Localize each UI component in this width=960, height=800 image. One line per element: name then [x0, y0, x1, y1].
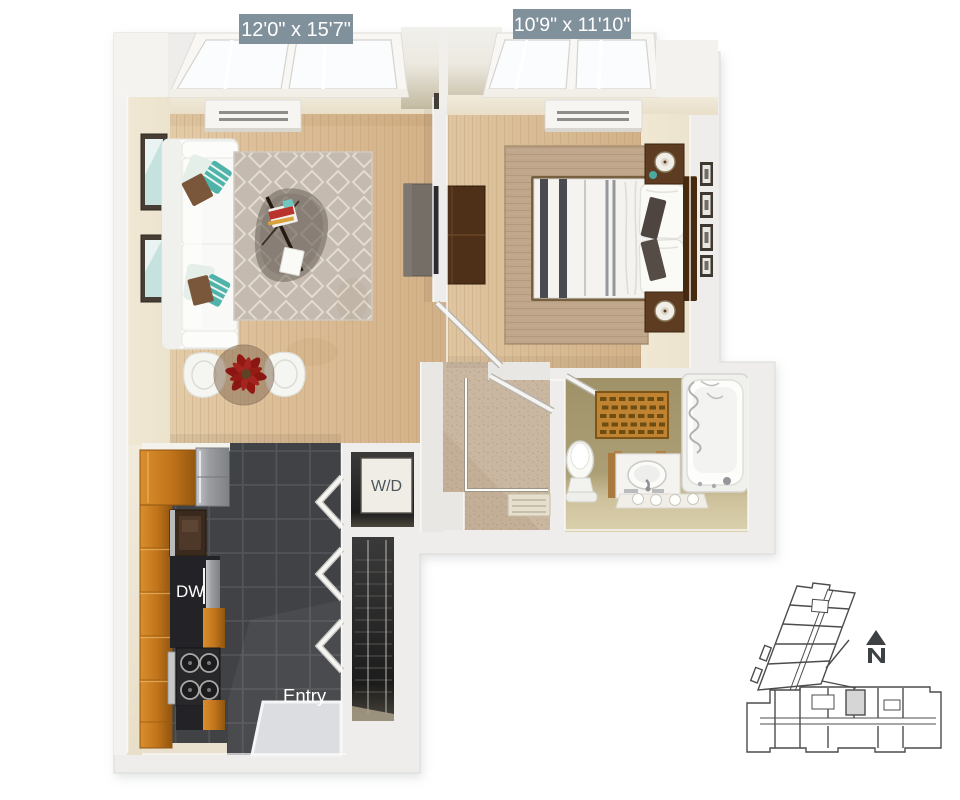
svg-text:W/D: W/D: [371, 478, 402, 495]
svg-text:DW: DW: [176, 582, 204, 601]
svg-text:12'0" x 15'7": 12'0" x 15'7": [241, 19, 351, 41]
svg-text:Entry: Entry: [283, 685, 327, 706]
svg-text:10'9" x 11'10": 10'9" x 11'10": [514, 14, 630, 36]
